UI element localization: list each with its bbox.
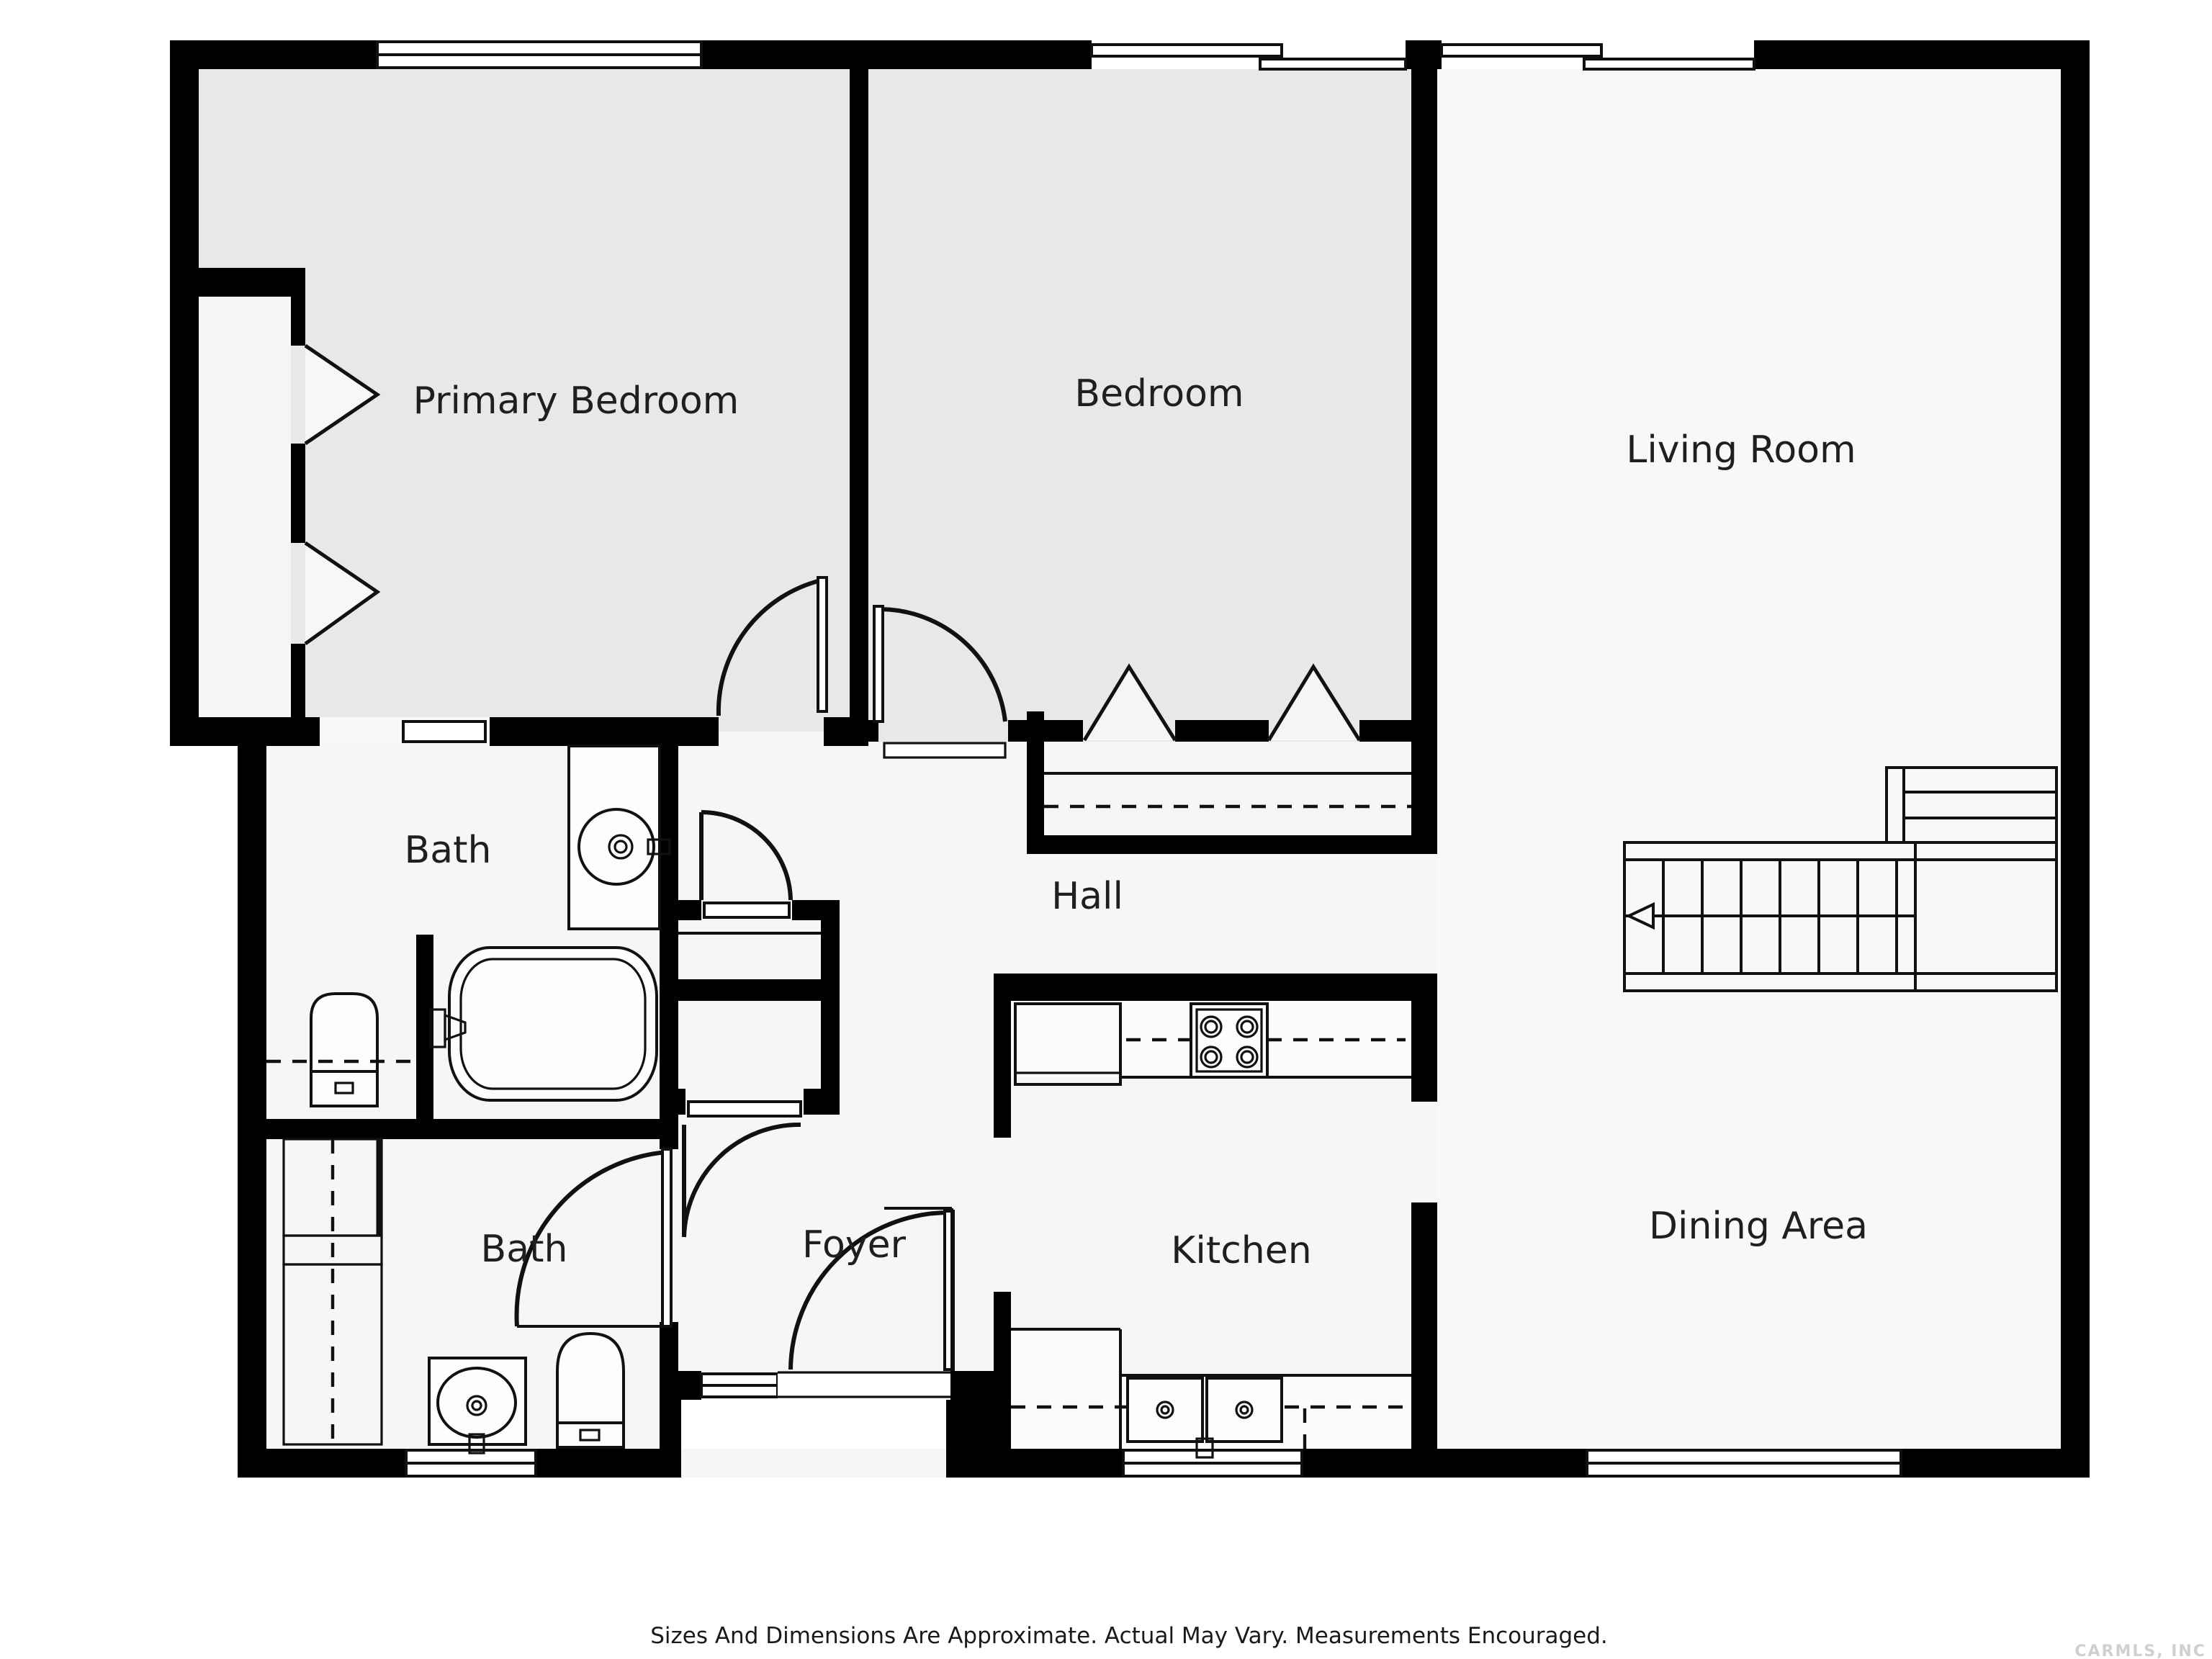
wall-bath-divider — [238, 1119, 678, 1139]
wall-closet-east-a — [291, 297, 305, 346]
wall-bedcloset-north-a — [1044, 720, 1083, 742]
wall-bedcloset-south — [1027, 835, 1437, 854]
vanity-sink-upper — [569, 746, 670, 929]
label-foyer: Foyer — [802, 1223, 907, 1267]
counter-left-run — [1011, 1329, 1120, 1449]
wall-bottom-right — [946, 1449, 2090, 1478]
floorplan-page: Primary Bedroom Bedroom Living Room Bath… — [0, 0, 2212, 1659]
label-hall: Hall — [1051, 875, 1123, 918]
wall-bedroom-south-a — [850, 720, 878, 742]
label-dining-area: Dining Area — [1649, 1205, 1868, 1248]
wall-kitchen-east-b — [1411, 1202, 1437, 1449]
toilet-lower — [557, 1334, 624, 1447]
watermark-text: CARMLS, INC — [2074, 1642, 2206, 1659]
label-kitchen: Kitchen — [1171, 1229, 1311, 1272]
wall-hallcloset-mid — [678, 979, 840, 1001]
label-living-room: Living Room — [1626, 428, 1856, 472]
wall-primary-south-b — [490, 717, 719, 746]
wall-bedcloset-north-b — [1175, 720, 1269, 742]
front-door-opening — [778, 1371, 950, 1400]
pocket-door-primary-bath — [320, 717, 490, 746]
floor-primary-closet — [196, 297, 291, 717]
wall-kitchen-west-a — [994, 1001, 1011, 1138]
window-dining — [1587, 1450, 1901, 1476]
wall-kitchen-west-b — [994, 1292, 1011, 1371]
wall-closet-east-c — [291, 644, 305, 717]
wall-main-vertical — [1411, 40, 1437, 854]
wall-lowerbath-east-a — [660, 920, 678, 1149]
window-primary-bedroom — [377, 42, 701, 68]
wall-bath-east — [660, 717, 678, 920]
wall-bedcloset-west — [1027, 711, 1044, 854]
wall-left-upper — [170, 40, 199, 746]
label-bath-upper: Bath — [405, 829, 492, 872]
vanity-sink-lower — [429, 1358, 526, 1453]
exterior-notch — [170, 746, 238, 1478]
wall-hallcloset-east — [821, 900, 840, 1115]
label-bath-lower: Bath — [481, 1228, 568, 1271]
wall-lowerbath-east-b — [660, 1322, 678, 1449]
wall-right — [2061, 69, 2090, 1478]
wall-hallcloset-south-a — [678, 1089, 685, 1115]
wall-closet-top — [196, 268, 305, 297]
floor-fills — [170, 40, 2090, 1478]
wall-kitchen-north — [994, 974, 1437, 1001]
stove — [1191, 1004, 1267, 1077]
wall-hallcloset-north-a — [660, 900, 701, 920]
window-entry-sidelight — [701, 1374, 778, 1397]
wall-entry-post — [946, 1371, 1011, 1478]
label-bedroom: Bedroom — [1074, 372, 1244, 415]
wall-bedroom-divider — [850, 40, 868, 717]
wall-closet-east-b — [291, 444, 305, 543]
floorplan-drawing: Primary Bedroom Bedroom Living Room Bath… — [0, 0, 2212, 1659]
label-primary-bedroom: Primary Bedroom — [413, 379, 739, 423]
bathtub — [431, 948, 657, 1100]
disclaimer-text: Sizes And Dimensions Are Approximate. Ac… — [650, 1623, 1608, 1649]
wall-primary-south-a — [170, 717, 320, 746]
porch — [681, 1400, 946, 1449]
window-bedroom — [1092, 40, 1406, 69]
door-bedroom-threshold — [884, 743, 1005, 757]
wall-left-lower — [238, 746, 266, 1478]
window-living-room — [1442, 40, 1754, 69]
